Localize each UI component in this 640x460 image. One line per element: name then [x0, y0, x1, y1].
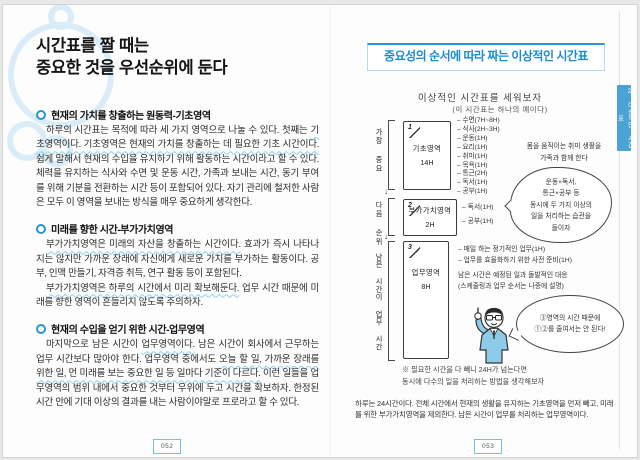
right-page: 2 이상적인 시간표 중요성의 순서에 따라 짜는 이상적인 시간표 이상적인 … [330, 5, 637, 457]
box-hours: 8H [421, 282, 430, 291]
added-value-time-list: 독서(1H)공부(1H) [462, 201, 493, 229]
paragraph: 부가가치영역은 하루의 시간에서 미리 확보해둔다. 업무 시간 때문에 미래를… [36, 282, 319, 311]
page-title: 시간표를 짤 때는 중요한 것을 우선순위에 둔다 [36, 35, 227, 79]
section-added-value-area: 미래를 향한 시간-부가가치영역 부가가치영역은 미래의 자산을 창출하는 시간… [36, 222, 319, 310]
section-work-area: 현재의 수입을 얻기 위한 시간-업무영역 마지막으로 남은 시간이 업무영역이… [36, 322, 319, 410]
section-basic-area: 현재의 가치를 창출하는 원동력-기초영역 하루의 시간표는 목적에 따라 세 … [36, 108, 319, 210]
page-number: 053 [474, 439, 502, 454]
schedule-note: 남은 시간은 예정된 일과 돌발적인 대응(스케줄링과 업무 순서는 나중에 설… [458, 271, 568, 292]
box-number-text: 2 [408, 202, 412, 209]
bracket-2 [388, 198, 395, 236]
time-list-item: 통근(2H) [457, 170, 500, 179]
text-segment: 부가가치영역은 하루의 시간에서 미리 확보해둔다. [46, 284, 239, 294]
box-number: 3 [405, 243, 420, 258]
sketch-title: 이상적인 시간표를 세워보자 [350, 90, 610, 104]
sketch-subtitle: (이 시간표는 하나의 예이다) [370, 104, 630, 115]
time-list-item: 식사(2H~3H) [457, 126, 500, 135]
bracket-3 [388, 241, 395, 361]
section-heading-text: 현재의 가치를 창출하는 원동력-기초영역 [51, 107, 211, 122]
down-arrow-icon: ↓ [384, 187, 388, 196]
timetable-box-basic: 1 기초영역 14H [403, 121, 451, 190]
box-label: 기초영역 [413, 144, 441, 154]
time-list-item: 요리(1H) [457, 144, 500, 153]
figure-header: 중요성의 순서에 따라 짜는 이상적인 시간표 [367, 43, 605, 71]
time-list-item: 독서(1H) [457, 179, 500, 188]
time-list-item: 공부(1H) [457, 188, 500, 197]
text-segment: 부가가치영역은 미래의 자산을 창출하는 시간이다. [46, 240, 241, 250]
basic-time-list: 수면(7H~8H)식사(2H~3H)운동(1H)요리(1H)취미(1H)목욕(1… [457, 117, 500, 197]
priority-label-3: 남은 시간이 업무 시간 [374, 253, 384, 351]
time-list-item: 공부(1H) [462, 215, 493, 229]
priority-label-1: 가장 중요 [374, 128, 384, 173]
timetable-box-added-value: 2 부가가치영역 2H [403, 199, 457, 236]
margin-rule [619, 11, 620, 449]
speech-bubble: ③영역의 시간 때문에①②를 줄여서는 안 된다! [516, 295, 624, 353]
box-number-text: 1 [408, 124, 412, 131]
box-number: 1 [405, 123, 420, 138]
thought-bubble: 운동×독서,통근×공부 등동시에 두 가지 이상의일을 처리하는 습관을들이자 [510, 167, 612, 243]
time-list-item: 매일 하는 정기적인 업무(1H) [458, 245, 572, 256]
time-list-item: 수면(7H~8H) [457, 117, 500, 126]
family-note: 몸을 움직이는 취미 생활을가족과 함께 한다 [516, 141, 612, 165]
ring-bullet-icon [36, 324, 46, 334]
section-heading: 미래를 향한 시간-부가가치영역 [36, 222, 319, 235]
paragraph: 부가가치영역은 미래의 자산을 창출하는 시간이다. 효과가 즉시 나타나지는 … [36, 238, 319, 281]
priority-label-2: 다음 순위 [374, 201, 384, 246]
time-list-item: 업무를 효율화하기 위한 사전 준비(1H) [458, 256, 572, 267]
ring-bullet-icon [36, 110, 46, 120]
work-time-list: 매일 하는 정기적인 업무(1H)업무를 효율화하기 위한 사전 준비(1H) [458, 245, 572, 266]
page-number: 052 [153, 439, 181, 454]
page-title-line2: 중요한 것을 우선순위에 둔다 [36, 59, 227, 77]
book-spread: 시간표를 짤 때는 중요한 것을 우선순위에 둔다 현재의 가치를 창출하는 원… [2, 4, 638, 458]
text-segment: 업무영역이다. [141, 340, 194, 350]
chapter-tab: 2 이상적인 시간표 [617, 85, 631, 151]
footnote: ※ 필요한 시간을 다 빼니 24H가 넘는다면동시에 다수의 일을 처리하는 … [402, 364, 544, 387]
text-segment: 쉽게 말해서 현재의 수입을 유지하기 위해 활동하는 시간이라고 할 수 있다… [36, 155, 319, 208]
paragraph: 하루의 시간표는 목적에 따라 세 가지 영역으로 나눌 수 있다. 첫째는 기… [36, 124, 319, 210]
figure-caption: 하루는 24시간이다. 전체 시간에서 현재의 생활을 유지하는 기초영역을 먼… [355, 398, 617, 420]
page-title-line1: 시간표를 짤 때는 [36, 37, 149, 55]
article-body: 현재의 가치를 창출하는 원동력-기초영역 하루의 시간표는 목적에 따라 세 … [36, 108, 319, 423]
box-number-text: 3 [408, 244, 412, 251]
time-list-item: 운동(1H) [457, 135, 500, 144]
section-heading-text: 미래를 향한 시간-부가가치영역 [51, 221, 173, 236]
time-list-item: 독서(1H) [462, 201, 493, 215]
timetable-box-work: 3 업무영역 8H [403, 241, 449, 359]
paragraph: 마지막으로 남은 시간이 업무영역이다. 남은 시간이 회사에서 근무하는 업무… [36, 338, 319, 410]
pointing-hand-icon [475, 313, 481, 319]
section-heading-text: 현재의 수입을 얻기 위한 시간-업무영역 [51, 321, 204, 336]
character-illustration [470, 305, 516, 365]
ring-bullet-icon [36, 224, 46, 234]
time-list-item: 취미(1H) [457, 153, 500, 162]
box-number: 2 [405, 201, 420, 216]
left-page: 시간표를 짤 때는 중요한 것을 우선순위에 둔다 현재의 가치를 창출하는 원… [3, 5, 330, 457]
bracket-1 [388, 120, 395, 190]
section-heading: 현재의 가치를 창출하는 원동력-기초영역 [36, 108, 319, 121]
box-hours: 2H [425, 220, 434, 229]
box-label: 업무영역 [412, 268, 440, 278]
text-segment: 하루의 시간표는 목적에 따라 세 가지 영역으로 나눌 수 있다. 첫째는 [46, 126, 310, 136]
down-arrow-icon: ↓ [384, 232, 388, 241]
text-segment: 마지막으로 남은 시간이 [46, 340, 141, 350]
section-heading: 현재의 수입을 얻기 위한 시간-업무영역 [36, 322, 319, 335]
box-hours: 14H [420, 158, 433, 167]
